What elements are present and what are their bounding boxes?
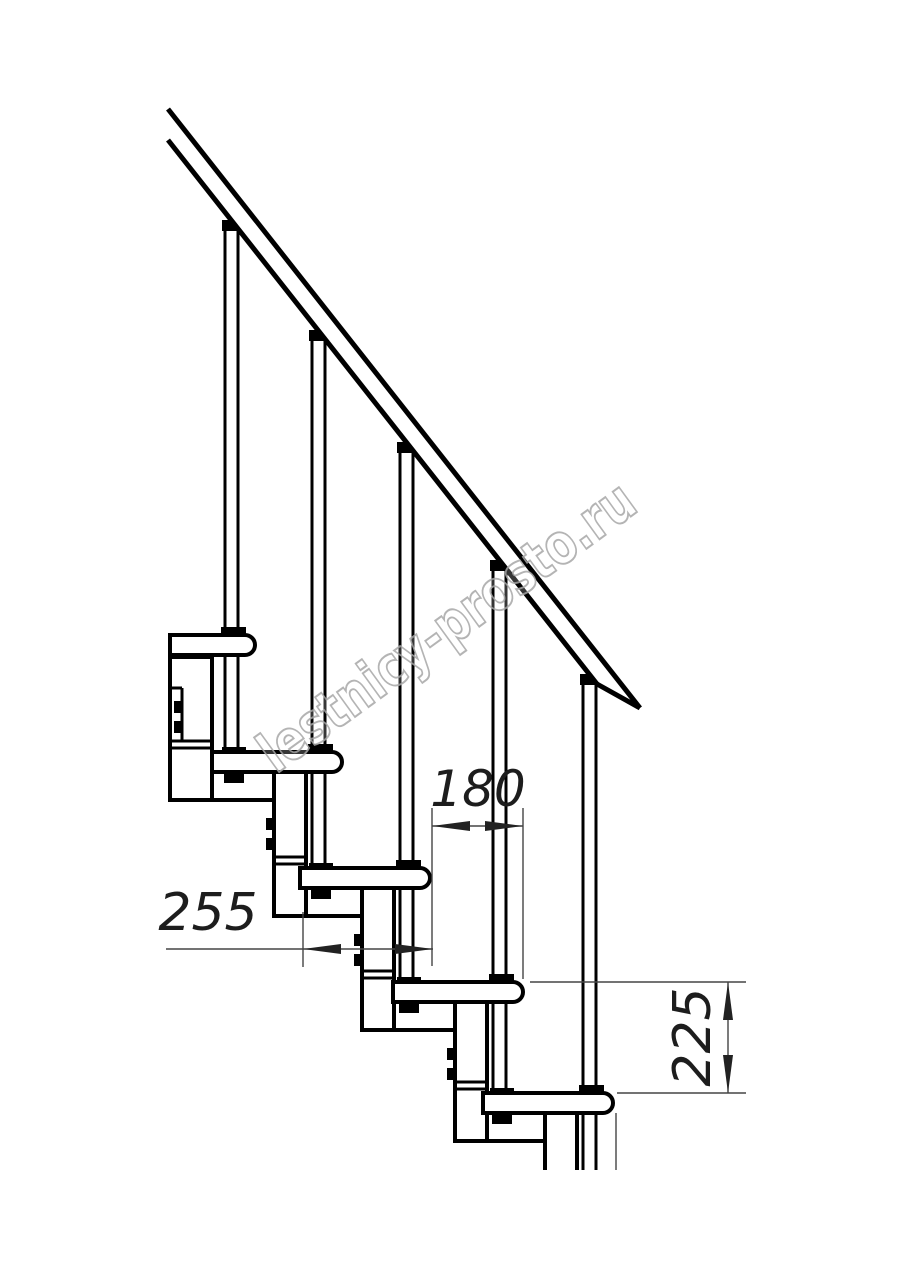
dimension-label-rise: 225: [663, 987, 723, 1086]
arrowhead-down: [723, 1055, 733, 1093]
dimension-label-depth: 255: [158, 883, 257, 943]
column-bolt: [354, 934, 362, 946]
tread-5: [483, 1093, 613, 1113]
column-box: [362, 888, 394, 1030]
staircase-technical-drawing: 180 255 225 lestnicy-prosto.ru: [0, 0, 914, 1280]
column-bolt: [447, 1068, 455, 1080]
column-bolt: [174, 701, 182, 713]
watermark-text: lestnicy-prosto.ru: [246, 468, 648, 785]
support-column-module-5: [545, 1113, 577, 1170]
baluster-1: [221, 220, 246, 635]
arrowhead-left: [303, 944, 341, 954]
column-bolt: [266, 838, 274, 850]
tread-4: [393, 982, 523, 1002]
arrowhead-left: [432, 821, 470, 831]
tread-1: [170, 635, 255, 655]
column-bolt: [354, 954, 362, 966]
baluster-base-flange: [221, 627, 246, 635]
arrowhead-right: [485, 821, 523, 831]
column-box: [274, 772, 306, 916]
tread-3: [300, 868, 430, 888]
baluster-base-flange: [396, 860, 421, 868]
rod-nut: [492, 1115, 512, 1124]
rod-nut: [311, 890, 331, 899]
column-bolt: [174, 721, 182, 733]
arrowhead-up: [723, 982, 733, 1020]
column-bolt: [447, 1048, 455, 1060]
baluster-base-flange: [489, 974, 514, 982]
dimension-run-180: 180: [430, 760, 525, 979]
drawing-canvas: 180 255 225 lestnicy-prosto.ru: [0, 0, 914, 1280]
dimension-rise-225: 225: [530, 982, 746, 1170]
rod-nut: [224, 774, 244, 783]
column-bolt: [266, 818, 274, 830]
baluster-5: [579, 674, 604, 1093]
baluster-base-flange: [579, 1085, 604, 1093]
baluster-rod-5: [583, 1113, 596, 1170]
dimension-label-run: 180: [430, 760, 525, 818]
rod-nut: [399, 1004, 419, 1013]
column-box: [455, 1002, 487, 1141]
